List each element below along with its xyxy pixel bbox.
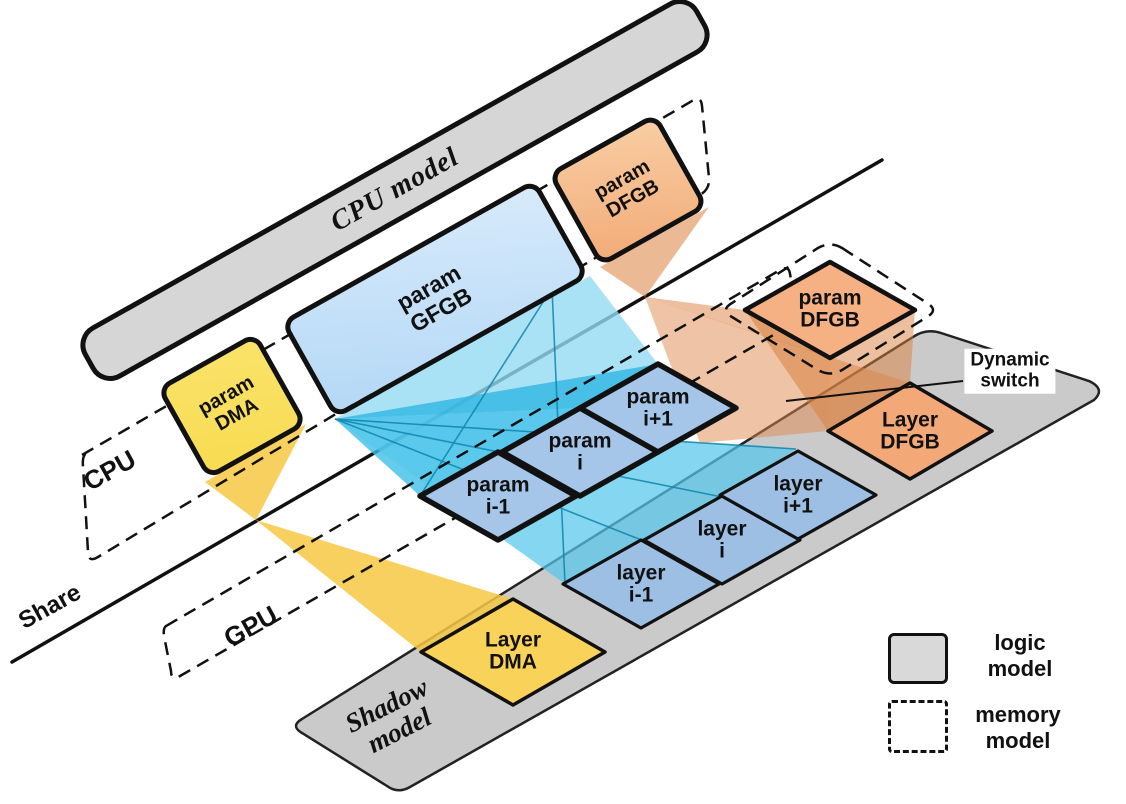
param-dma-label: param DMA <box>195 372 268 439</box>
legend-memory-label: memory model <box>975 702 1061 754</box>
layer-dfgb-label: Layer DFGB <box>880 410 940 455</box>
dynamic-switch-label: Dynamic switch <box>964 349 1055 394</box>
layer-next-label: layer i+1 <box>773 474 822 519</box>
param-gfgb-label: param GFGB <box>393 260 478 337</box>
logic-model-swatch <box>888 633 948 684</box>
layer-cur-label: layer i <box>697 519 746 564</box>
isometric-memory-model-diagram: CPU model param DMA param GFGB param DFG… <box>0 0 1126 804</box>
param-dfgb-mem-label: param DFGB <box>798 288 861 333</box>
param-cur-label: param i <box>548 431 611 476</box>
layer-dma-label: Layer DMA <box>485 630 541 675</box>
param-dfgb-cpu-label: param DFGB <box>591 156 664 223</box>
memory-model-swatch <box>888 700 948 753</box>
legend-logic-label: logic model <box>988 630 1053 682</box>
layer-prev-label: layer i-1 <box>616 563 665 608</box>
param-next-label: param i+1 <box>626 387 689 432</box>
param-prev-label: param i-1 <box>466 475 529 520</box>
